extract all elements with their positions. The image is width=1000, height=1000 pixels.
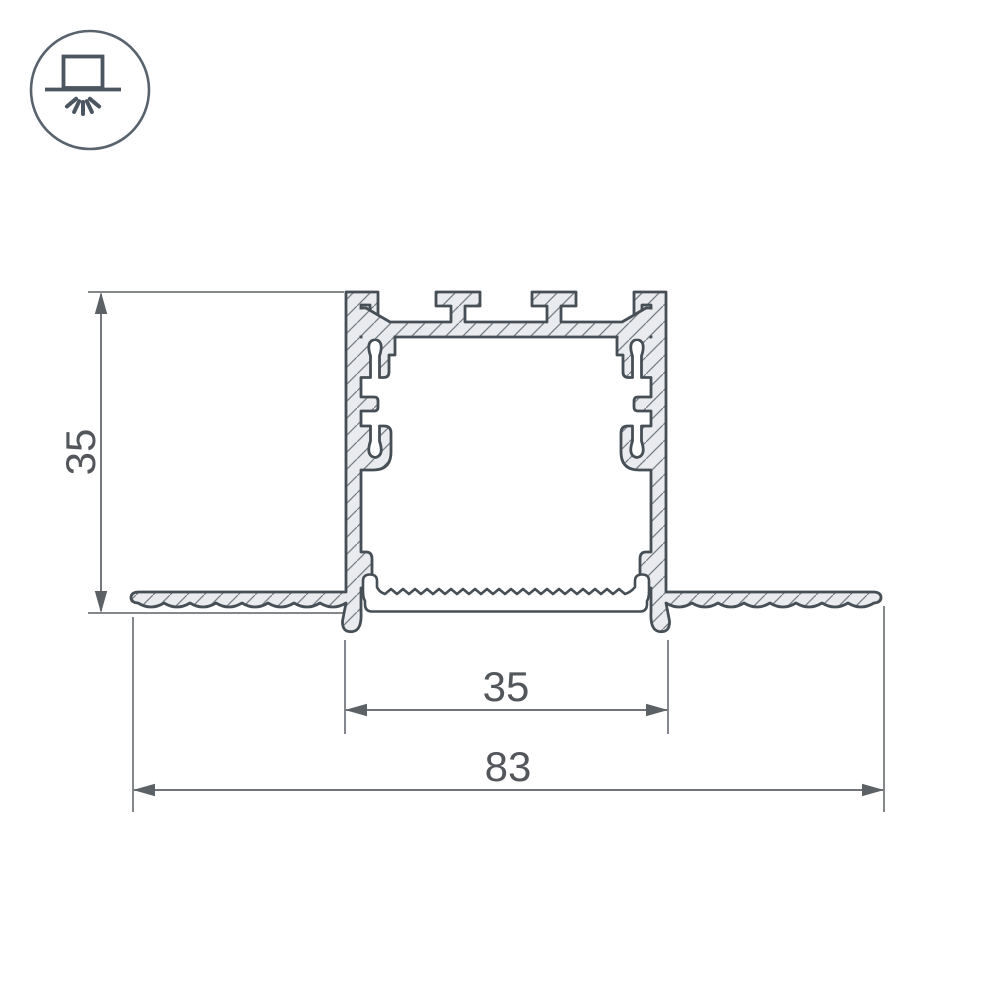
- technical-drawing: 35 35 83: [0, 0, 1000, 1000]
- arrowhead-right: [862, 784, 884, 796]
- profile-right-wall: [617, 292, 881, 632]
- dimension-inner-width: 35: [345, 640, 668, 734]
- profile-top-wall: [361, 292, 651, 337]
- arrowhead-up: [95, 292, 107, 314]
- dim-height-label: 35: [57, 429, 104, 476]
- arrowhead-right: [646, 704, 668, 716]
- technical-drawing-page: 35 35 83: [0, 0, 1000, 1000]
- dim-overall-width-label: 83: [485, 743, 532, 790]
- profile-cross-section: [131, 292, 881, 632]
- dimension-height: 35: [57, 292, 344, 613]
- dim-inner-width-label: 35: [483, 663, 530, 710]
- profile-left-wall: [131, 292, 395, 632]
- recessed-downlight-icon: [31, 31, 149, 149]
- diffuser: [363, 575, 649, 612]
- arrowhead-left: [133, 784, 155, 796]
- arrowhead-left: [345, 704, 367, 716]
- lamp-box-icon: [64, 57, 103, 89]
- light-rays-icon: [67, 99, 99, 114]
- arrowhead-down: [95, 591, 107, 613]
